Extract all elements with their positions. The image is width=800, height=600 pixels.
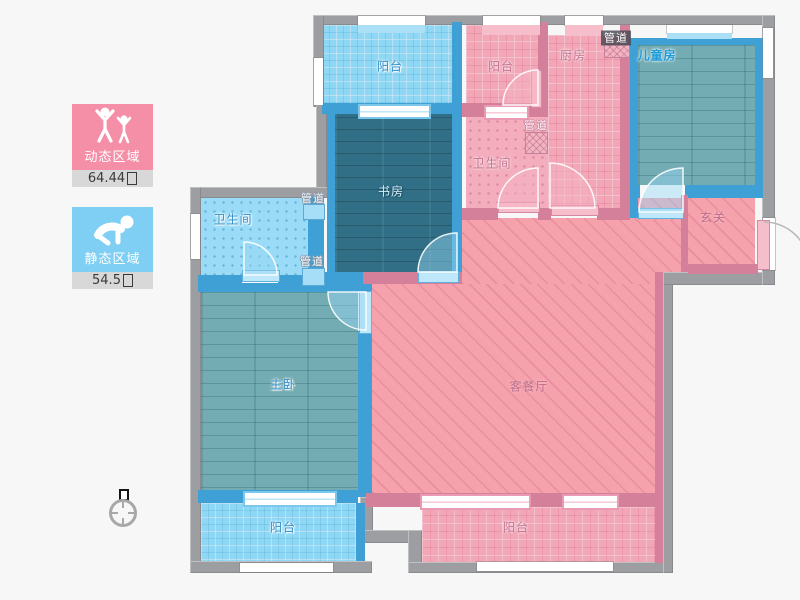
wall-bedroom-top xyxy=(198,283,372,292)
door-panel-bathroom-mid[interactable] xyxy=(498,202,540,213)
wall-corridor-top-a xyxy=(462,208,498,220)
window xyxy=(191,214,200,259)
label-bathroom-left: 卫生间 xyxy=(213,211,252,228)
room-balcony-bottom-right[interactable] xyxy=(422,507,655,562)
label-living-dining: 客餐厅 xyxy=(509,378,548,395)
duct-shaft xyxy=(604,44,630,58)
label-study: 书房 xyxy=(378,183,404,200)
duct-shaft xyxy=(303,204,325,220)
wall-balcony-br-right xyxy=(655,505,663,563)
label-kitchen: 厨房 xyxy=(560,47,586,64)
door-panel-balcony-mid[interactable] xyxy=(531,70,542,108)
legend-static-label: 静态区域 xyxy=(84,248,140,267)
label-balcony-bottom-left: 阳台 xyxy=(270,519,296,536)
room-children[interactable] xyxy=(638,45,755,185)
wall-study-block-right xyxy=(452,22,462,284)
door-panel-kitchen[interactable] xyxy=(551,205,599,216)
window xyxy=(420,494,531,510)
sqm-missing-glyph xyxy=(127,172,137,185)
wall-entry-bottom-lining xyxy=(688,264,758,274)
door-panel-study[interactable] xyxy=(418,271,459,283)
wall-children-right xyxy=(755,38,763,198)
door-panel-bedroom[interactable] xyxy=(359,291,372,334)
door-panel-bathroom-left[interactable] xyxy=(242,270,280,282)
window xyxy=(667,25,732,33)
window xyxy=(667,33,732,39)
window xyxy=(358,25,425,33)
label-duct-left-bot: 管道 xyxy=(300,253,324,269)
legend-static-area: 静态区域 xyxy=(72,207,153,272)
label-bathroom-mid: 卫生间 xyxy=(472,155,511,172)
label-children-room: 儿童房 xyxy=(637,47,676,64)
window xyxy=(565,16,603,25)
window xyxy=(763,28,773,78)
label-duct-mid: 管道 xyxy=(524,117,548,133)
window xyxy=(565,25,603,35)
label-balcony-top-left: 阳台 xyxy=(377,58,403,75)
window xyxy=(477,562,613,571)
window xyxy=(562,494,619,510)
wall-children-bottom-b xyxy=(685,185,763,198)
window xyxy=(358,104,431,119)
crawling-baby-icon xyxy=(87,212,139,246)
label-balcony-bottom-right: 阳台 xyxy=(503,519,529,536)
wall-entry-left xyxy=(681,195,688,272)
label-balcony-top-mid: 阳台 xyxy=(488,58,514,75)
window xyxy=(483,25,540,35)
wall-children-top xyxy=(630,38,763,45)
dynamic-area-value: 64.44 xyxy=(88,171,125,186)
label-duct-left-top: 管道 xyxy=(301,190,325,206)
duct-shaft xyxy=(302,268,325,286)
label-master-bedroom: 主卧 xyxy=(270,376,296,393)
legend-dynamic-area: 动态区域 xyxy=(72,104,153,170)
window xyxy=(243,491,337,507)
label-entry: 玄关 xyxy=(700,209,726,226)
wall-study-left-inner xyxy=(327,105,335,285)
room-living-corridor[interactable] xyxy=(462,218,681,284)
door-panel-children[interactable] xyxy=(638,208,684,219)
wall-bedroom-right xyxy=(358,331,372,497)
window xyxy=(358,16,425,25)
window xyxy=(484,105,529,120)
door-panel-entry[interactable] xyxy=(757,220,770,270)
wall-living-right xyxy=(655,272,663,505)
duct-shaft xyxy=(525,132,548,154)
static-area-value: 54.5 xyxy=(92,273,121,288)
window xyxy=(240,563,333,572)
window xyxy=(314,58,323,105)
window xyxy=(483,16,540,25)
wall-balcony-bl-right xyxy=(356,503,365,561)
floor-plan-canvas: 阳台 书房 阳台 厨房 儿童房 卫生间 玄关 卫生间 主卧 客餐厅 阳台 阳台 … xyxy=(0,0,800,600)
label-duct-top: 管道 xyxy=(601,31,631,46)
wall-corridor-top-c xyxy=(597,208,630,220)
wall-left-study xyxy=(316,105,327,195)
sqm-missing-glyph xyxy=(123,274,133,287)
legend-dynamic-label: 动态区域 xyxy=(84,146,140,165)
legend-dynamic-value: 64.44 xyxy=(72,170,153,187)
legend-static-value: 54.5 xyxy=(72,272,153,289)
wall-right-lower xyxy=(663,272,673,573)
wall-children-bottom-a xyxy=(630,185,640,198)
people-icon xyxy=(89,106,137,144)
compass-icon xyxy=(109,499,137,527)
